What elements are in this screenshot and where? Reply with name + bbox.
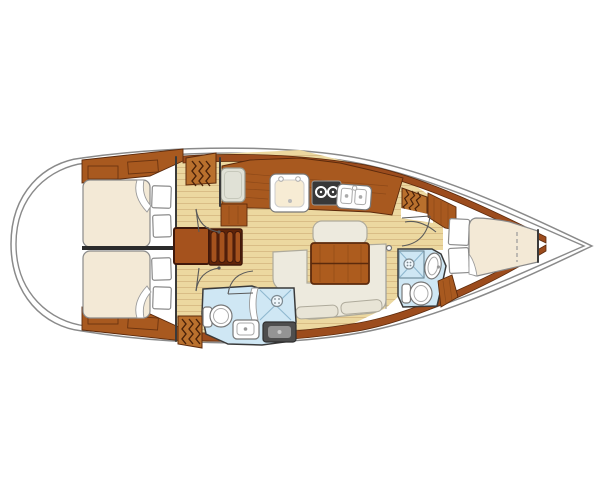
pillow [152,258,172,281]
pillow [448,218,469,245]
pillow [153,287,172,310]
drain [288,199,292,203]
stair-landing [174,228,209,264]
tread [235,232,241,263]
pillow [153,215,172,238]
aft-head-sink [233,320,259,339]
forward-head-toilet [402,282,432,305]
drain [244,327,248,331]
tread [227,232,233,263]
faucet [296,177,301,182]
salon-table [311,243,369,284]
aft-head [202,286,296,345]
aft-head-toilet [203,305,232,327]
settee-rail [296,305,339,319]
drain [278,330,282,334]
companionway-stairs [174,228,242,265]
cabin-divider-wall [82,246,176,250]
shower-head-icon [404,259,414,269]
tread [219,232,225,263]
yacht-floor-plan [0,0,600,480]
tread [211,232,217,263]
galley-cabinet [221,204,247,226]
galley-sink [270,174,309,212]
door-hinge [217,230,220,233]
toilet-tank [402,284,411,303]
pillow [152,186,172,209]
galley-double-sink [336,184,372,210]
faucet [352,186,357,191]
door-hinge [217,266,220,269]
shower-head-icon [272,296,283,307]
shower-pan [263,322,296,342]
faucet [279,177,284,182]
bench-cushion [313,221,367,245]
pillow [448,247,469,273]
floor-plan-svg [0,0,600,480]
door-knob [387,246,392,251]
